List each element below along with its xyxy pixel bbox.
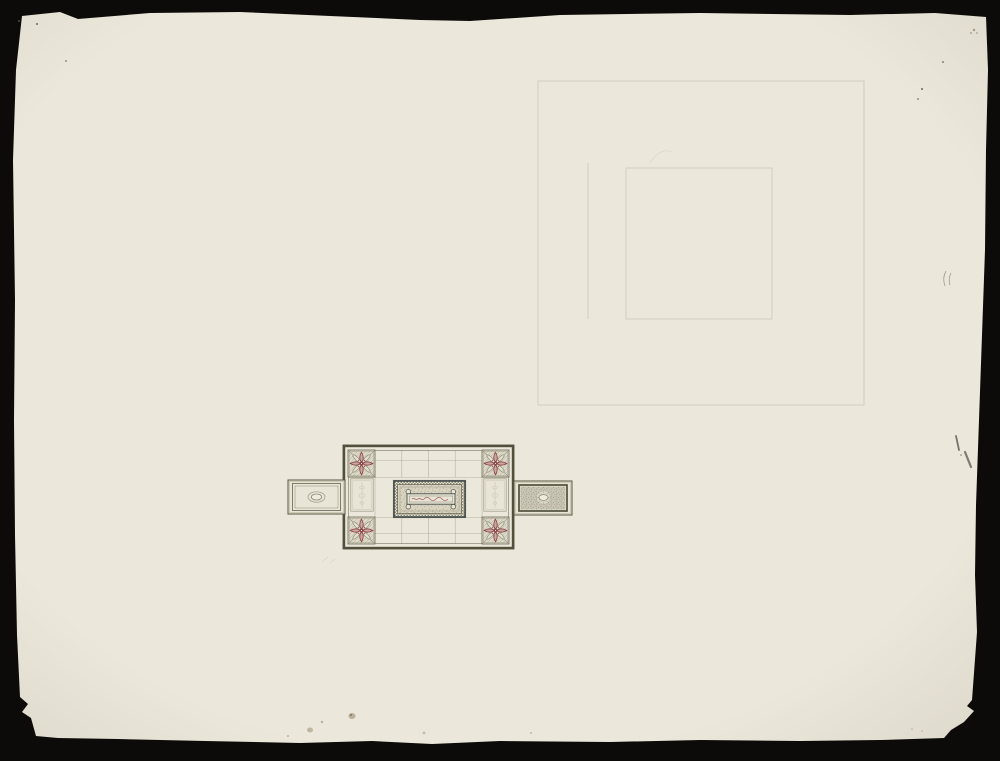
center-oval	[311, 494, 321, 500]
speck	[18, 20, 20, 22]
center-cartouche	[407, 494, 455, 504]
main-panel	[343, 445, 514, 549]
rosette-bottom-left	[348, 517, 375, 544]
rosette-top-left	[348, 450, 375, 477]
rosette-bottom-right	[482, 517, 509, 544]
wing-panel-left	[288, 480, 345, 514]
side-panel-left	[351, 479, 373, 511]
scanned-drawing	[0, 0, 1000, 761]
paper-sheet	[0, 0, 1000, 761]
speck	[65, 60, 66, 61]
wing-panel-right	[514, 481, 572, 515]
speck	[917, 98, 918, 99]
speck	[942, 61, 944, 63]
center-panel	[393, 480, 466, 518]
scan-background	[0, 0, 1000, 761]
center-oval	[539, 495, 548, 501]
rosette-top-right	[482, 450, 509, 477]
side-panel-right	[484, 479, 506, 511]
speck	[36, 23, 38, 25]
speck	[921, 88, 923, 90]
